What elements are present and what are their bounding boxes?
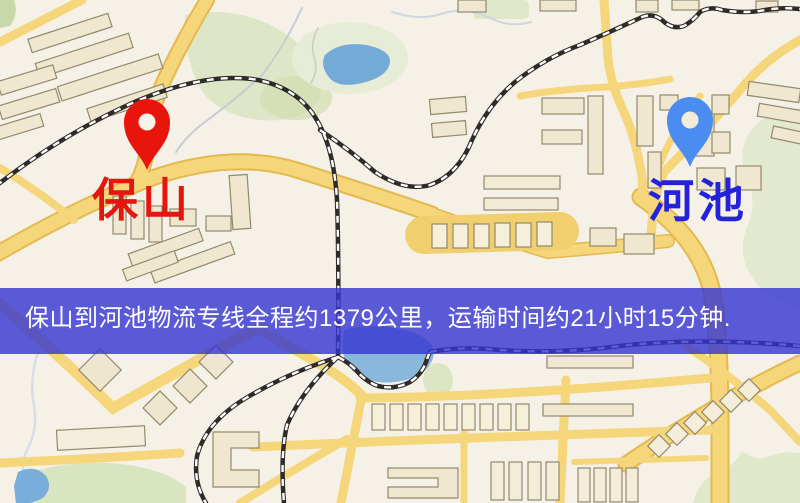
route-info-banner: 保山到河池物流专线全程约1379公里，运输时间约21小时15分钟. bbox=[0, 288, 800, 354]
destination-pin-hole bbox=[682, 112, 699, 129]
map-canvas[interactable]: 保山 河池 bbox=[0, 0, 800, 503]
origin-pin-hole bbox=[139, 114, 156, 131]
destination-label: 河池 bbox=[648, 175, 748, 227]
map-view[interactable]: 保山 河池 保山到河池物流专线全程约1379公里，运输时间约21小时15分钟. bbox=[0, 0, 800, 503]
route-info-text: 保山到河池物流专线全程约1379公里，运输时间约21小时15分钟. bbox=[25, 305, 731, 334]
origin-label: 保山 bbox=[92, 174, 192, 226]
